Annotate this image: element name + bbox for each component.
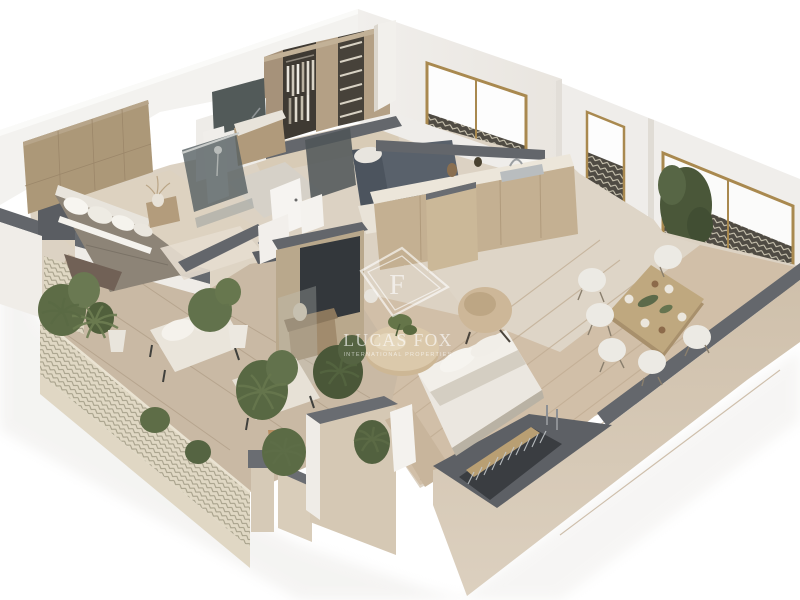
svg-text:INTERNATIONAL PROPERTIES: INTERNATIONAL PROPERTIES: [343, 352, 452, 358]
svg-text:F: F: [389, 270, 405, 301]
svg-text:LUCAS FOX: LUCAS FOX: [343, 330, 452, 350]
